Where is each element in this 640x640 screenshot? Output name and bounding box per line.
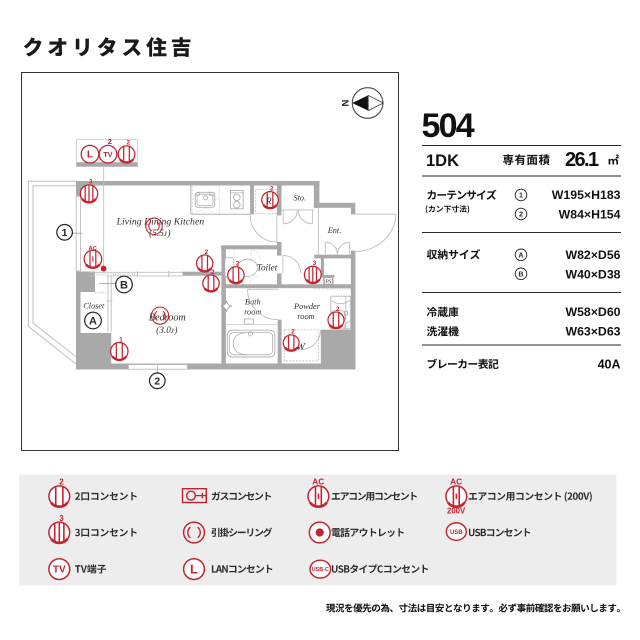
svg-text:A: A xyxy=(89,315,97,327)
svg-text:B: B xyxy=(518,269,523,278)
svg-text:room: room xyxy=(244,307,261,316)
svg-text:Powder: Powder xyxy=(293,302,321,311)
svg-text:R: R xyxy=(265,196,272,206)
svg-text:W82×D56: W82×D56 xyxy=(565,248,620,262)
svg-text:2: 2 xyxy=(59,478,64,487)
svg-text:Toilet: Toilet xyxy=(257,263,278,273)
svg-text:A: A xyxy=(518,250,523,259)
svg-text:Ent.: Ent. xyxy=(327,226,342,235)
svg-text:504: 504 xyxy=(422,107,475,145)
svg-text:3: 3 xyxy=(59,514,64,523)
svg-text:W63×D63: W63×D63 xyxy=(565,324,620,338)
svg-text:1: 1 xyxy=(62,227,68,239)
svg-text:Sto.: Sto. xyxy=(293,193,306,202)
svg-text:B: B xyxy=(120,279,128,291)
svg-text:L: L xyxy=(190,562,198,577)
svg-text:2: 2 xyxy=(270,185,274,192)
svg-text:2: 2 xyxy=(519,210,523,219)
svg-text:2: 2 xyxy=(236,261,240,268)
svg-text:26.1: 26.1 xyxy=(565,149,599,171)
svg-text:N: N xyxy=(341,99,352,106)
svg-text:TV: TV xyxy=(103,150,112,159)
svg-text:Living Dining Kitchen: Living Dining Kitchen xyxy=(116,216,205,227)
svg-text:Bath: Bath xyxy=(245,297,261,306)
svg-text:AC: AC xyxy=(312,476,324,486)
svg-text:3: 3 xyxy=(89,179,93,186)
svg-text:W195×H183: W195×H183 xyxy=(552,188,621,202)
svg-text:2: 2 xyxy=(205,249,209,256)
svg-text:(5.5ᴊ): (5.5ᴊ) xyxy=(149,228,170,239)
svg-text:PS: PS xyxy=(325,279,332,285)
svg-text:TV: TV xyxy=(53,565,66,576)
svg-text:2: 2 xyxy=(108,137,112,146)
svg-text:1DK: 1DK xyxy=(426,152,459,170)
svg-text:40A: 40A xyxy=(598,358,621,372)
svg-text:2: 2 xyxy=(211,269,215,276)
svg-text:3: 3 xyxy=(313,260,317,267)
svg-text:Closet: Closet xyxy=(83,302,105,311)
svg-text:2: 2 xyxy=(291,329,295,336)
svg-text:200V: 200V xyxy=(447,507,466,516)
svg-text:W58×D60: W58×D60 xyxy=(565,305,620,319)
svg-text:1: 1 xyxy=(119,336,123,343)
svg-text:AC: AC xyxy=(89,246,98,252)
svg-text:1: 1 xyxy=(519,191,523,200)
svg-text:AC: AC xyxy=(450,476,462,486)
svg-text:W84×H154: W84×H154 xyxy=(559,207,621,221)
svg-text:L: L xyxy=(87,150,93,161)
svg-text:USB-C: USB-C xyxy=(312,567,329,573)
svg-text:(3.0ᴊ): (3.0ᴊ) xyxy=(156,325,177,336)
svg-text:2: 2 xyxy=(336,306,340,313)
svg-text:room: room xyxy=(297,312,314,321)
svg-text:W40×D38: W40×D38 xyxy=(565,267,620,281)
svg-text:USB: USB xyxy=(450,530,463,536)
svg-text:2: 2 xyxy=(127,140,131,147)
svg-text:2: 2 xyxy=(154,376,160,388)
